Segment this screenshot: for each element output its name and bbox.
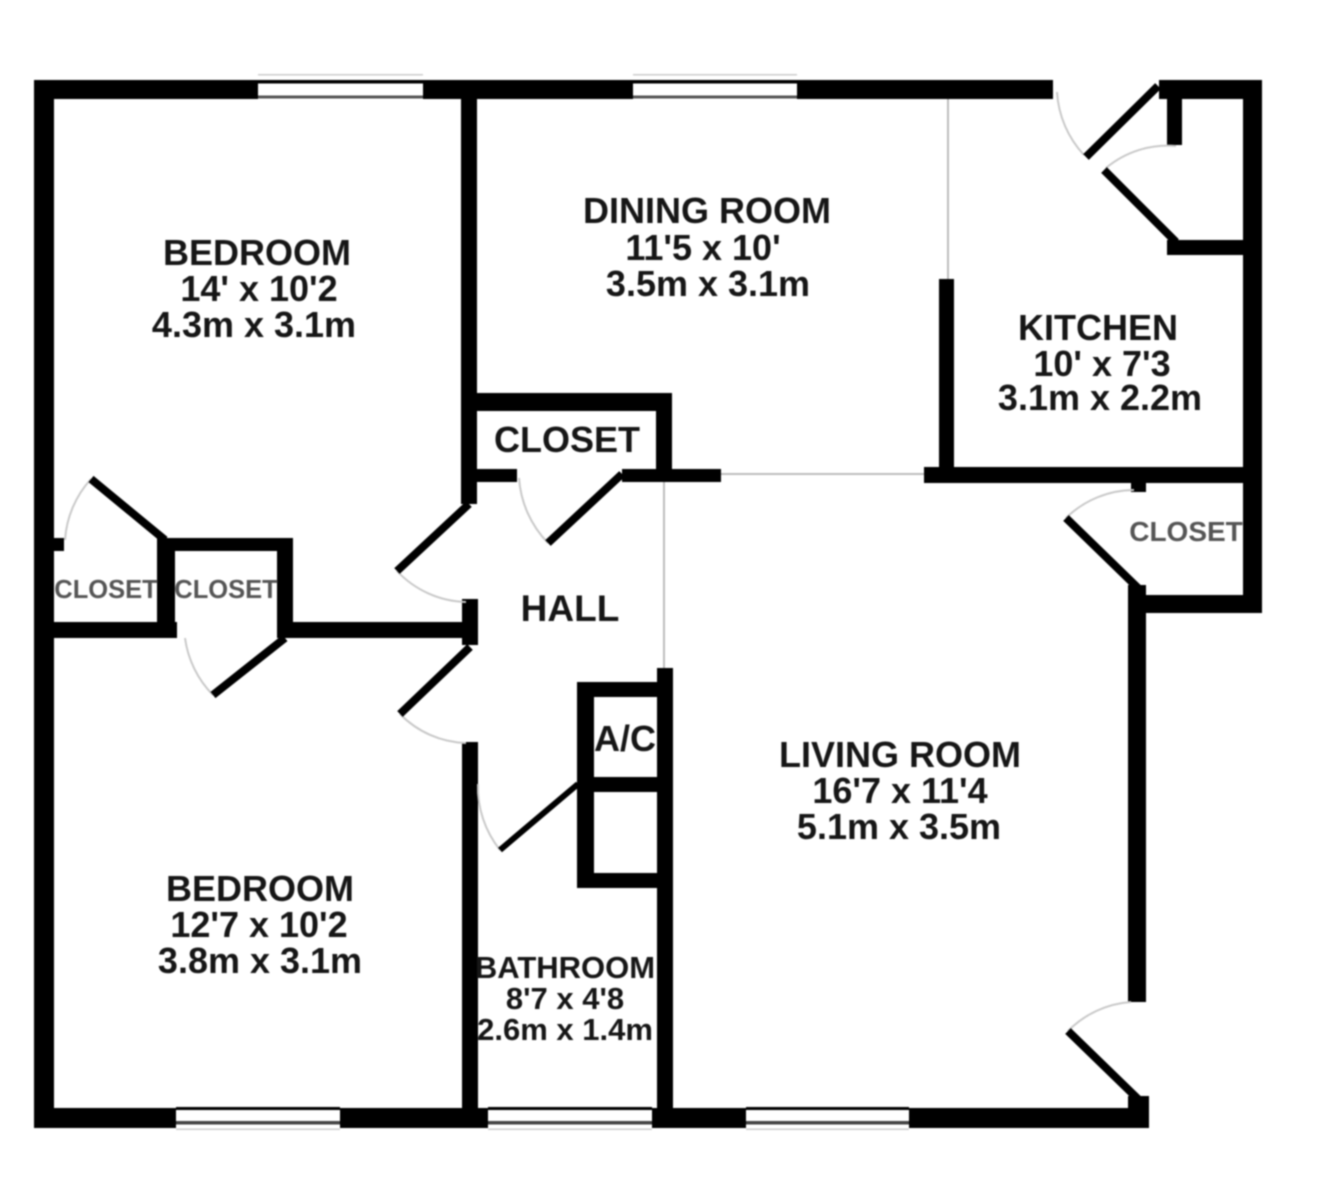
svg-text:CLOSET: CLOSET: [1129, 516, 1243, 547]
svg-text:CLOSET: CLOSET: [174, 576, 278, 604]
svg-text:8'7 x 4'8: 8'7 x 4'8: [506, 981, 624, 1016]
svg-text:KITCHEN: KITCHEN: [1018, 307, 1178, 348]
svg-text:5.1m x 3.5m: 5.1m x 3.5m: [797, 806, 1001, 847]
svg-text:LIVING ROOM: LIVING ROOM: [779, 734, 1021, 775]
svg-text:11'5 x 10': 11'5 x 10': [625, 227, 780, 268]
svg-text:BEDROOM: BEDROOM: [163, 232, 351, 273]
svg-text:12'7 x 10'2: 12'7 x 10'2: [170, 904, 347, 945]
svg-text:14' x 10'2: 14' x 10'2: [180, 268, 337, 309]
svg-text:HALL: HALL: [521, 588, 620, 629]
svg-text:3.5m x 3.1m: 3.5m x 3.1m: [606, 263, 810, 304]
svg-text:3.8m x 3.1m: 3.8m x 3.1m: [158, 940, 362, 981]
svg-text:A/C: A/C: [594, 718, 656, 759]
svg-text:3.1m x 2.2m: 3.1m x 2.2m: [998, 377, 1202, 418]
svg-text:16'7 x 11'4: 16'7 x 11'4: [812, 770, 987, 811]
svg-text:2.6m x 1.4m: 2.6m x 1.4m: [477, 1012, 653, 1047]
svg-text:DINING ROOM: DINING ROOM: [583, 190, 831, 231]
svg-text:BATHROOM: BATHROOM: [475, 950, 655, 985]
svg-text:CLOSET: CLOSET: [494, 419, 640, 460]
svg-text:BEDROOM: BEDROOM: [166, 868, 354, 909]
svg-text:CLOSET: CLOSET: [54, 576, 158, 604]
svg-text:4.3m x 3.1m: 4.3m x 3.1m: [152, 304, 356, 345]
